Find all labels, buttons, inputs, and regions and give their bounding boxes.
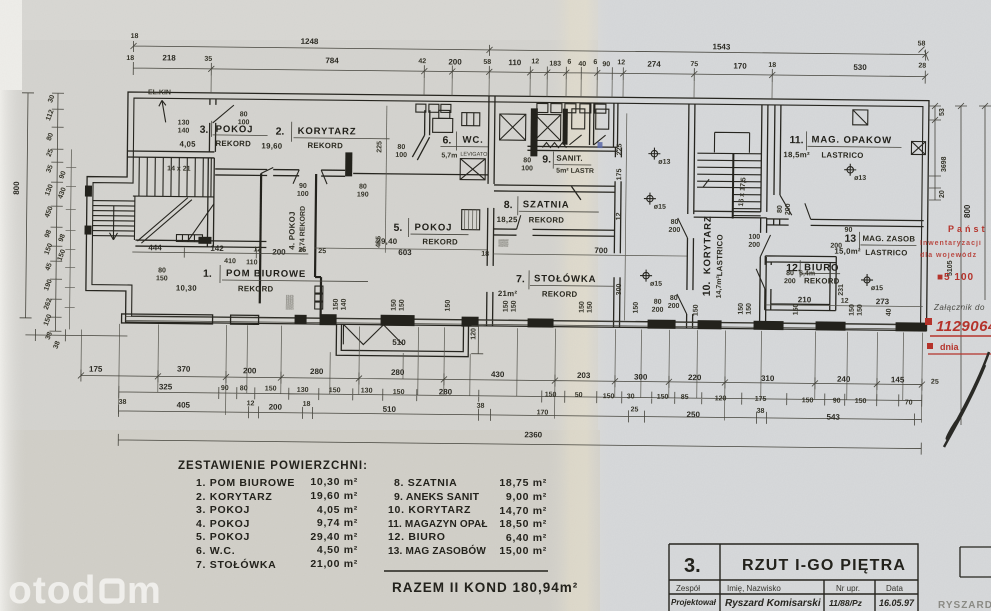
svg-text:5. POKOJ: 5. POKOJ	[196, 531, 250, 543]
svg-text:Państ: Państ	[948, 224, 988, 234]
svg-text:15,00 m²: 15,00 m²	[499, 545, 547, 557]
svg-text:1. POM BIUROWE: 1. POM BIUROWE	[196, 477, 295, 489]
svg-text:3. POKOJ: 3. POKOJ	[196, 504, 250, 516]
svg-text:18,75 m²: 18,75 m²	[499, 477, 547, 489]
svg-text:9,00 m²: 9,00 m²	[506, 491, 547, 503]
svg-text:Imię, Nazwisko: Imię, Nazwisko	[727, 584, 781, 593]
svg-text:1129064-: 1129064-	[936, 318, 991, 335]
svg-text:3.: 3.	[684, 555, 701, 577]
svg-text:18,50 m²: 18,50 m²	[499, 518, 547, 530]
svg-text:RYSZARD: RYSZARD	[938, 600, 991, 611]
svg-text:3698: 3698	[941, 156, 948, 172]
svg-text:6. W.C.: 6. W.C.	[196, 545, 235, 557]
svg-text:14,70 m²: 14,70 m²	[499, 505, 547, 517]
svg-text:Załącznik do: Załącznik do	[933, 303, 985, 312]
svg-text:■5 100: ■5 100	[937, 272, 974, 283]
svg-text:otod: otod	[8, 569, 96, 611]
svg-text:4. POKOJ: 4. POKOJ	[196, 518, 250, 530]
svg-text:19,60 m²: 19,60 m²	[310, 490, 358, 502]
svg-text:6,40 m²: 6,40 m²	[506, 532, 547, 544]
svg-text:Projektował: Projektował	[671, 598, 717, 607]
svg-text:800: 800	[963, 204, 972, 218]
svg-text:dnia: dnia	[940, 342, 959, 352]
svg-text:20: 20	[939, 190, 946, 198]
svg-text:9. ANEKS SANIT: 9. ANEKS SANIT	[394, 491, 480, 503]
svg-text:29,40 m²: 29,40 m²	[310, 531, 358, 543]
svg-text:m: m	[127, 570, 161, 611]
svg-text:21,00 m²: 21,00 m²	[310, 558, 358, 570]
svg-text:Inwentaryzacji: Inwentaryzacji	[920, 240, 982, 247]
svg-text:ZESTAWIENIE POWIERZCHNI:: ZESTAWIENIE POWIERZCHNI:	[178, 460, 368, 472]
svg-text:10,30 m²: 10,30 m²	[310, 476, 358, 488]
svg-text:53: 53	[939, 108, 946, 116]
svg-text:11. MAGAZYN OPAŁ: 11. MAGAZYN OPAŁ	[388, 519, 488, 530]
svg-text:12. BIURO: 12. BIURO	[388, 531, 446, 543]
svg-text:Data: Data	[886, 584, 903, 593]
svg-text:Zespół: Zespół	[676, 584, 700, 593]
svg-text:9,74 m²: 9,74 m²	[317, 517, 358, 529]
svg-text:4,50 m²: 4,50 m²	[317, 544, 358, 556]
svg-text:RZUT I-GO PIĘTRA: RZUT I-GO PIĘTRA	[742, 557, 906, 574]
svg-text:Ryszard Komisarski: Ryszard Komisarski	[725, 598, 821, 609]
svg-text:11/88/Pz: 11/88/Pz	[829, 598, 863, 608]
svg-text:8. SZATNIA: 8. SZATNIA	[394, 477, 457, 489]
svg-text:RAZEM II KOND 180,94m²: RAZEM II KOND 180,94m²	[392, 580, 578, 595]
svg-text:10. KORYTARZ: 10. KORYTARZ	[388, 504, 471, 516]
svg-text:dla wojewódz: dla wojewódz	[920, 252, 977, 259]
svg-text:16.05.97: 16.05.97	[879, 598, 915, 608]
svg-text:13. MAG ZASOBÓW: 13. MAG ZASOBÓW	[388, 544, 486, 557]
svg-text:Nr upr.: Nr upr.	[836, 584, 860, 593]
svg-text:2. KORYTARZ: 2. KORYTARZ	[196, 491, 273, 503]
svg-text:4,05 m²: 4,05 m²	[317, 504, 358, 516]
svg-text:7. STOŁÓWKA: 7. STOŁÓWKA	[196, 558, 276, 571]
